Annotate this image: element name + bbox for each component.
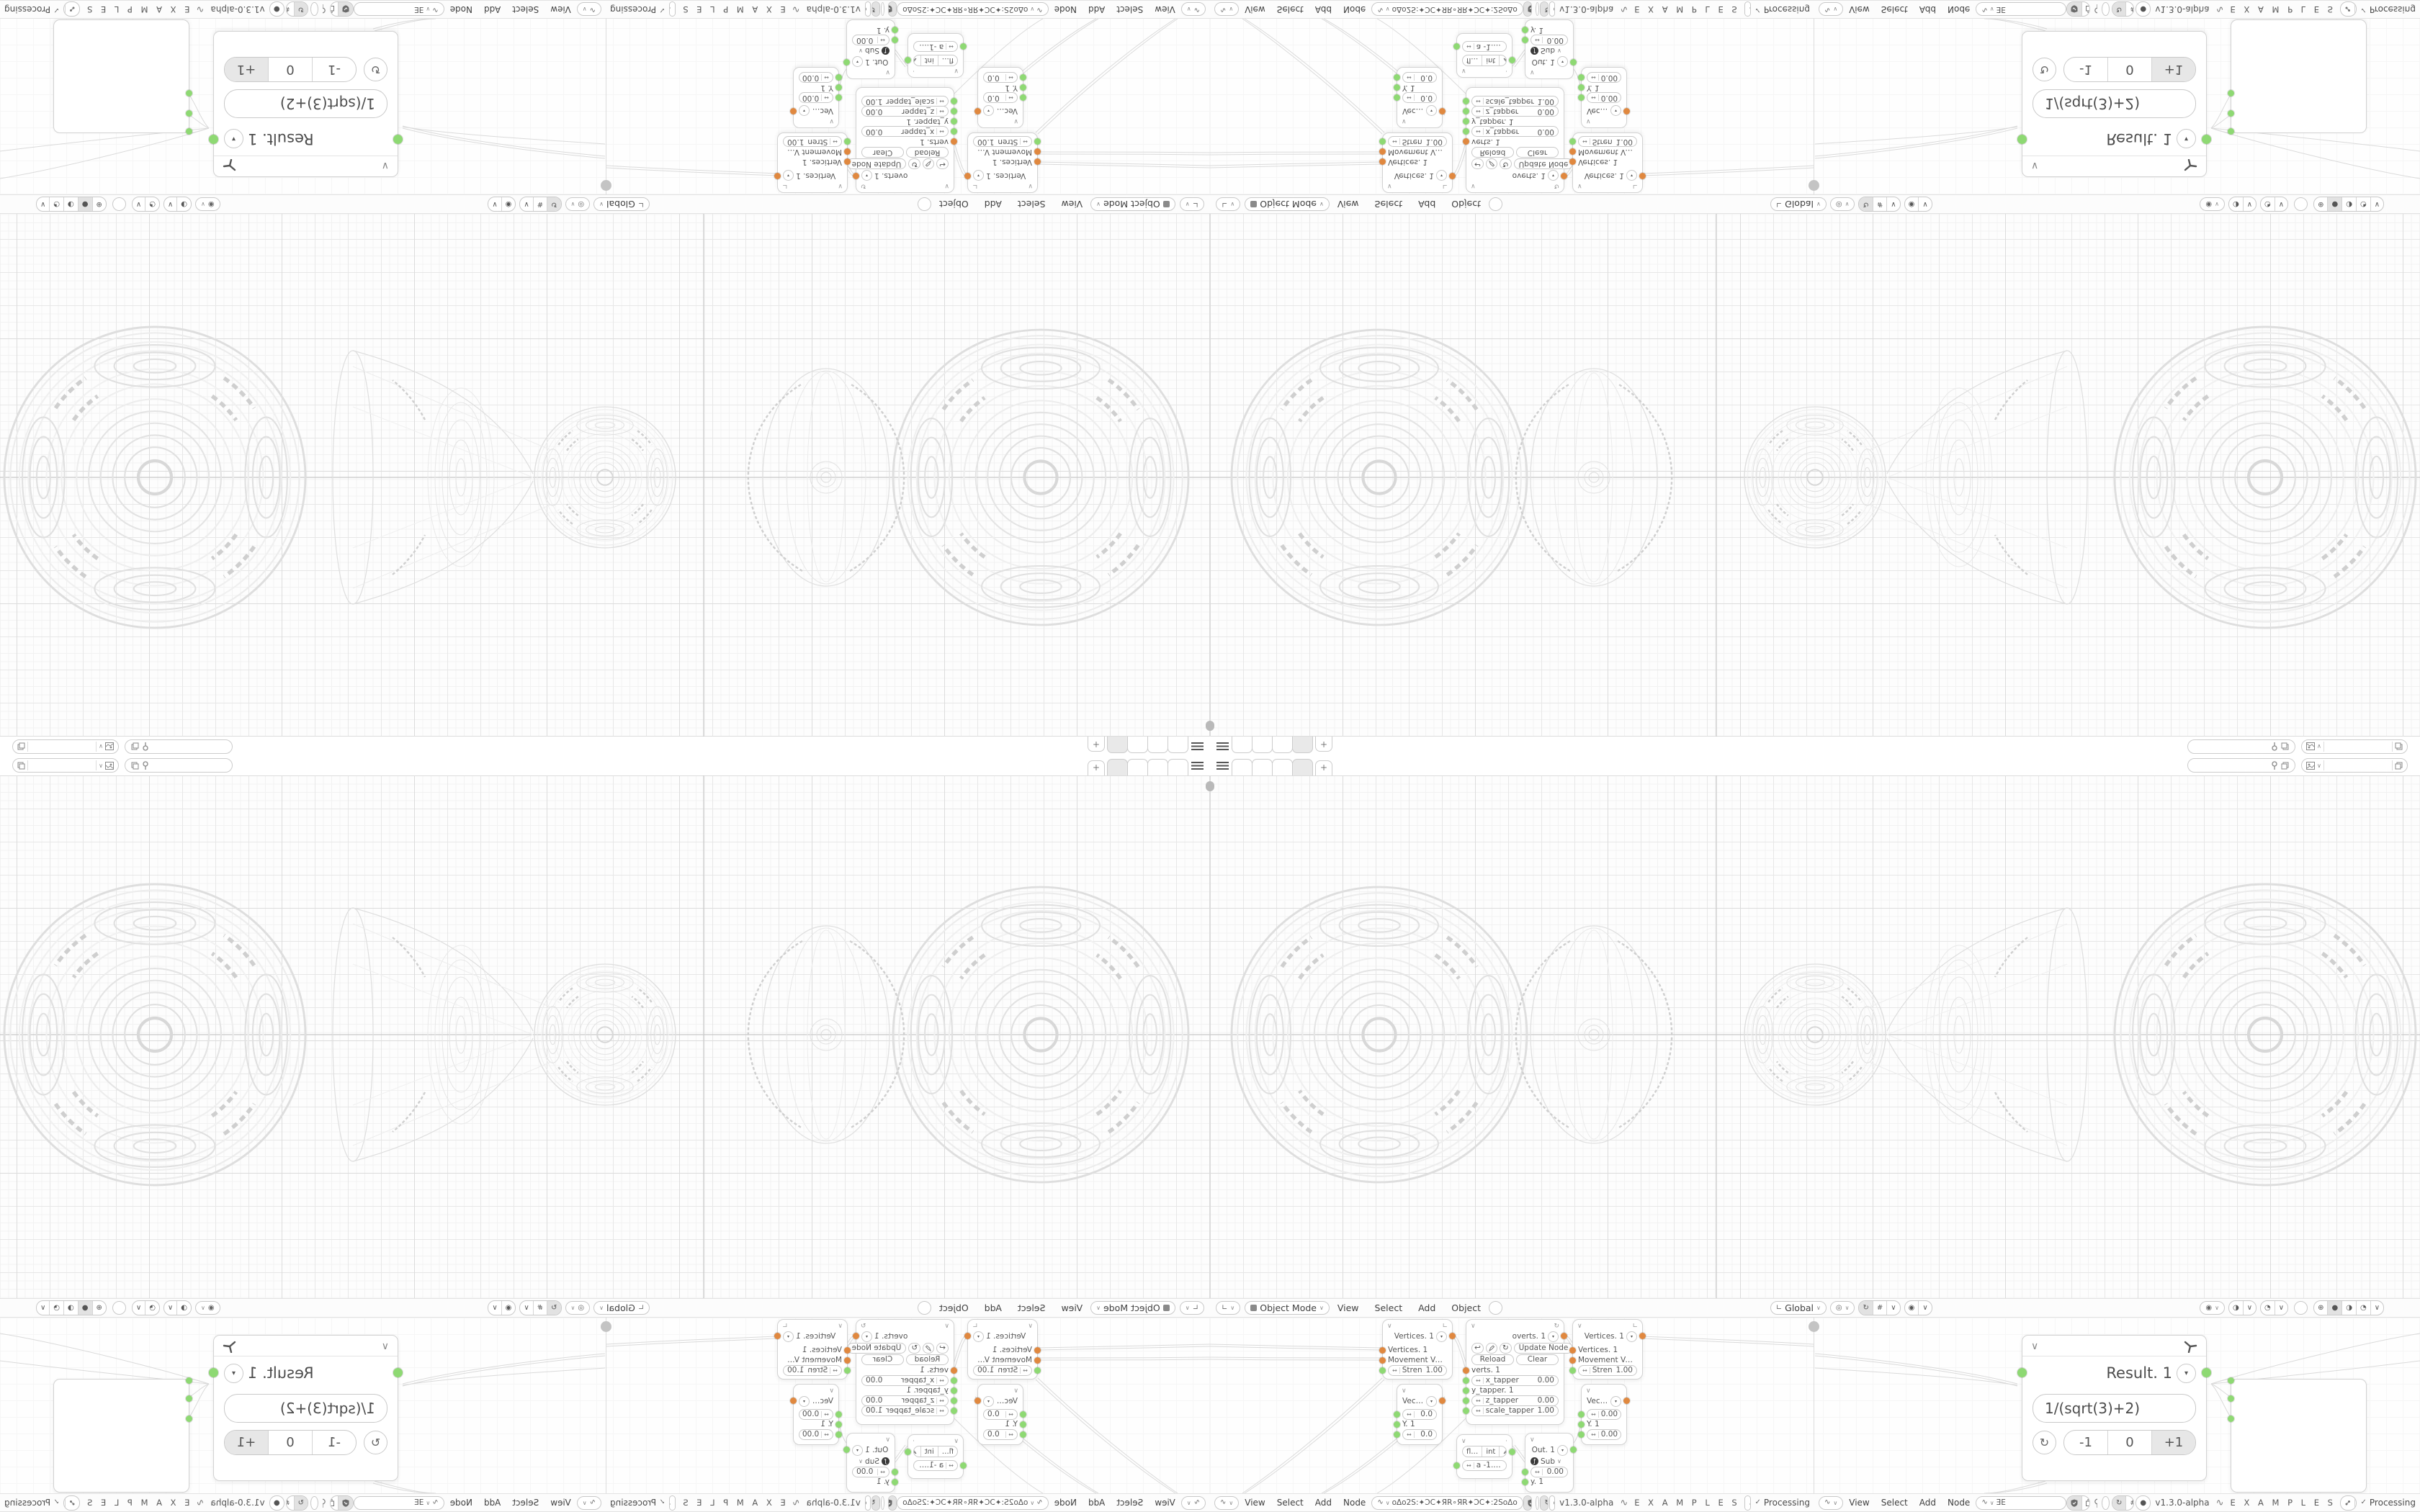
menu-node[interactable]: Node [1343,1498,1366,1508]
int-option[interactable]: int [920,1446,938,1457]
snlite-edit-button[interactable] [923,1343,934,1354]
pin-icon[interactable] [142,761,149,770]
draft-mode-icon[interactable]: ↻ [871,1496,879,1510]
node-blank[interactable] [53,19,189,133]
draft-mode-icon[interactable]: ↻ [2112,1496,2126,1510]
shading-wireframe-icon[interactable]: ⊕ [92,197,106,211]
shield-icon[interactable] [2067,1496,2082,1510]
node-result[interactable]: ∨ Result. 1 ▾ 1/(sqrt(3)+2) ↻ -1 0 +1 [213,31,398,177]
value-field[interactable]: ↔0.00 [799,1429,833,1440]
input-socket[interactable] [1463,109,1469,115]
shading-solid-icon[interactable]: ● [78,1301,92,1315]
menu-add[interactable]: Add [985,199,1002,210]
dropdown-button[interactable]: ▾ [852,1445,863,1456]
z-tapper-field[interactable]: ↔ z_tapper0.00 [861,107,949,117]
cycle-button[interactable]: ↻ [2033,1431,2056,1454]
input-socket[interactable] [951,1398,957,1404]
value-field[interactable]: ↔0.00 [1587,93,1621,104]
editor-type-button[interactable]: ∿∨ [1214,3,1239,17]
copy-icon[interactable] [2082,1496,2090,1510]
node-vector-2[interactable]: ∨ Vector… ▾ ↔0.00 Y. 1 ↔0.00 [1581,67,1627,128]
draft-snap-controls[interactable]: ↻ # ∨ [286,1495,308,1511]
increment-button[interactable]: +1 [2152,1431,2195,1454]
extra-tools[interactable] [2340,2,2357,17]
proportional-icon[interactable]: ◉ [501,1301,516,1315]
examples-label[interactable]: E X A M P L E S [84,1498,189,1508]
output-socket[interactable] [1639,1333,1646,1339]
type-switch[interactable]: fl… int ▾ [913,1446,958,1457]
input-socket[interactable] [1379,1357,1386,1364]
snap-controls[interactable]: ↻ # ∨ [519,1300,561,1315]
overlays-icon[interactable]: ◑ [176,197,191,211]
type-switch[interactable]: fl… int ▾ [913,55,958,66]
tree-ops[interactable]: × [330,2,354,17]
output-socket[interactable] [905,1449,911,1455]
x-tapper-field[interactable]: ↔ x_tapper0.00 [1471,1375,1559,1386]
value-field[interactable]: ↔0.0 [1402,73,1437,84]
overlays-controls[interactable]: ◑ ∨ [2228,197,2257,212]
node-editor-area[interactable]: ∨∟ Vertices. 1 ▾ Vertices. 1 Movement Ve… [1210,1318,2420,1493]
shading-wireframe-icon[interactable]: ⊕ [2314,1301,2328,1315]
menu-add[interactable]: Add [1919,1498,1936,1508]
output-socket[interactable] [1509,57,1515,63]
input-socket[interactable] [1394,95,1400,102]
area-divider[interactable] [606,19,606,194]
sphere-dropdown[interactable]: ● ∨ [1549,1495,1555,1511]
input-socket[interactable] [1463,1367,1469,1374]
menu-add[interactable]: Add [1418,1302,1435,1313]
menu-select[interactable]: Select [1116,1498,1143,1508]
tree-name[interactable]: oΔo2S:✦ƆC✦ЯR∘ЯR✦ƆC✦:2SoΔo [902,5,1028,14]
copy-icon[interactable] [2395,743,2403,751]
snlite-back-button[interactable]: ↩ [1471,1343,1484,1354]
shield-icon[interactable] [2067,3,2082,17]
input-socket[interactable] [1394,75,1400,81]
menu-select[interactable]: Select [1116,4,1143,14]
tree-selector[interactable]: ∿ ∨ ƎE [354,3,444,17]
output-socket[interactable] [774,1333,781,1339]
draft-snap-controls[interactable]: ↻ # ∨ [1540,1495,1549,1511]
tree-name[interactable]: ƎE [359,1498,424,1507]
formula-field[interactable]: 1/(sqrt(3)+2) [2033,89,2196,118]
sphere-dropdown[interactable]: ● ∨ [2136,2,2151,17]
shading-solid-icon[interactable]: ● [78,197,92,211]
proportional-edit-controls[interactable]: ◉ ∨ [1904,1300,1932,1315]
mode-dropdown[interactable]: Object Mode ∨ [1245,197,1330,211]
tree-ops[interactable]: × [1523,1495,1532,1511]
viewport-3d[interactable] [0,214,1210,737]
shading-mode-switch[interactable]: ⊕ ● ◑ ◔ ∨ [2313,1300,2384,1315]
sphere-icon[interactable]: ● [865,3,870,17]
material-preview[interactable] [881,3,884,17]
node-overts-snlite[interactable]: ∨↻ overts. 1 ▾ ↩ ↻ Update Node Reload Cl… [856,87,954,193]
input-socket[interactable] [844,1367,851,1374]
value-field[interactable]: ↔0.00 [799,73,833,84]
input-socket[interactable] [1522,37,1528,44]
collapse-chevron-icon[interactable]: ∨ [1402,1387,1407,1395]
add-workspace-button[interactable]: + [1088,737,1105,752]
snap-target-icon[interactable]: # [533,1301,547,1315]
copy-icon[interactable] [131,762,139,770]
toolbar-toggle-nub[interactable] [1206,781,1210,791]
tree-name[interactable]: oΔo2S:✦ƆC✦ЯR∘ЯR✦ƆC✦:2SoΔo [1392,5,1518,14]
x-tapper-field[interactable]: ↔ x_tapper0.00 [861,127,949,138]
output-socket[interactable] [1449,173,1456,179]
node-overts-snlite[interactable]: ∨↻ overts. 1 ▾ ↩ ↻ Update Node Reload Cl… [856,1319,954,1425]
input-socket[interactable] [1020,1431,1026,1438]
scale-tapper-field[interactable]: ↔ scale_tapper1.00 [861,1405,949,1416]
material-preview[interactable] [1536,1496,1539,1510]
mode-dropdown[interactable]: Object Mode ∨ [1090,197,1175,211]
type-switch[interactable]: fl… int ▾ [1462,55,1507,66]
workspace-tab-active[interactable] [1107,759,1128,776]
menu-view[interactable]: View [1337,199,1359,210]
reset-button[interactable]: 0 [268,58,312,81]
overlays-controls[interactable]: ◑ ∨ [163,197,192,212]
workspace-tab-active[interactable] [1292,736,1313,753]
copy-icon[interactable] [2281,743,2289,751]
input-socket[interactable] [1569,1347,1576,1354]
tree-ops[interactable]: × [2066,2,2090,17]
input-socket[interactable] [1569,159,1576,166]
node-vector-1[interactable]: ∨ Vector… ▾ ↔0.0 Y. 1 ↔0.0 [1397,67,1443,128]
workspace-tab[interactable] [1168,736,1188,753]
pin-icon[interactable] [323,5,326,14]
value-field[interactable]: ↔0.0 [1402,93,1437,104]
xform-indicator[interactable] [1489,197,1502,211]
output-socket[interactable] [1561,173,1567,179]
sphere-icon[interactable]: ● [269,1496,284,1510]
viewlayer-selector[interactable]: ∨ [2301,758,2408,773]
input-socket[interactable] [2228,1395,2234,1402]
dropdown-button[interactable]: ▾ [1436,171,1447,181]
shading-material-icon[interactable]: ◑ [63,1301,78,1315]
operation-label[interactable]: Sub [865,47,879,55]
output-socket[interactable] [1639,173,1646,179]
refresh-icon[interactable]: ↻ [1554,183,1559,190]
input-socket[interactable] [892,1469,898,1475]
input-socket[interactable] [951,1408,957,1414]
tree-ops[interactable]: × [2066,1495,2090,1511]
node-tool-icon[interactable] [2341,3,2355,17]
dropdown-button[interactable]: ▾ [799,1396,810,1407]
workspace-tab[interactable] [1147,759,1168,776]
proportional-icon[interactable]: ◉ [1905,1301,1919,1315]
xray-controls[interactable]: ◔ ∨ [132,197,160,212]
copy-icon[interactable] [330,3,338,17]
int-option[interactable]: int [920,55,938,66]
draft-snap-controls[interactable]: ↻ # ∨ [1540,2,1549,17]
output-socket[interactable] [964,1333,971,1339]
reset-button[interactable]: 0 [2108,58,2152,81]
sphere-dropdown[interactable]: ● ∨ [1549,2,1555,17]
value-field[interactable]: ↔0.0 [1402,1429,1437,1440]
snap-grid-icon[interactable]: # [286,1496,293,1510]
tree-ops[interactable]: × [888,1495,897,1511]
toolbar-toggle-nub[interactable] [1206,721,1210,731]
input-socket[interactable] [186,90,192,96]
proportional-edit-controls[interactable]: ◉ ∨ [488,1300,516,1315]
node-result[interactable]: ∨ Result. 1 ▾ 1/(sqrt(3)+2) ↻ -1 0 +1 [213,1335,398,1481]
show-gizmo-dropdown[interactable]: ◉ ∨ [195,1301,220,1315]
workspace-tab-active[interactable] [1292,759,1313,776]
eyedropper-icon[interactable] [1500,1446,1507,1457]
collapse-chevron-icon[interactable]: ∨ [382,160,389,171]
examples-label[interactable]: E X A M P L E S [1634,1498,1739,1508]
shading-wireframe-icon[interactable]: ⊕ [92,1301,106,1315]
update-node-button[interactable]: Update Node [1514,159,1574,170]
node-blank[interactable] [53,1379,189,1493]
output-socket[interactable] [790,1398,797,1404]
pin-icon[interactable] [323,1498,326,1508]
node-vertices-1[interactable]: ∨∟ Vertices. 1 ▾ Vertices. 1 Movement Ve… [967,1319,1038,1380]
mode-dropdown[interactable]: Object Mode ∨ [1090,1301,1175,1315]
console-icon[interactable] [2355,3,2357,17]
formula-field[interactable]: 1/(sqrt(3)+2) [224,1394,387,1423]
console-icon[interactable] [63,1496,65,1510]
input-socket[interactable] [2228,110,2234,117]
sphere-dropdown[interactable]: ● ∨ [269,2,284,17]
clear-button[interactable]: Clear [1516,148,1559,158]
node-vertices-2[interactable]: ∨∟ Vertices. 1 ▾ Vertices. 1 Movement Ve… [1572,1319,1643,1380]
a-value-field[interactable]: ↔a -1.00 [913,42,958,53]
int-option[interactable]: int [1482,55,1500,66]
viewlayer-selector[interactable]: ∨ [2301,739,2408,754]
sphere-icon[interactable]: ● [269,3,284,17]
editor-type-button[interactable]: ∟ ∨ [1216,1301,1240,1315]
tree-selector[interactable]: ∿ ∨ oΔo2S:✦ƆC✦ЯR∘ЯR✦ƆC✦:2SoΔo [1371,1496,1523,1510]
workspace-tab[interactable] [1252,736,1273,753]
draft-snap-controls[interactable]: ↻ # ∨ [871,1495,880,1511]
node-float-int[interactable]: ∨· fl… int ▾ ↔a -1.00 [1456,33,1512,78]
input-socket[interactable] [1522,1479,1528,1485]
output-socket[interactable] [209,1368,218,1377]
reload-button[interactable]: Reload [1471,148,1514,158]
collapse-chevron-icon[interactable]: ∨ [838,183,843,190]
copy-icon[interactable] [2395,762,2403,770]
cycle-button[interactable]: ↻ [364,58,387,81]
value-field[interactable]: ↔0.0 [983,73,1018,84]
draft-snap-controls[interactable]: ↻ # ∨ [286,2,308,17]
draft-snap-controls[interactable]: ↻ # ∨ [871,2,880,17]
material-preview[interactable] [310,3,318,17]
shading-extra[interactable] [2294,197,2308,211]
input-socket[interactable] [1379,139,1386,145]
node-tool-icon[interactable] [1745,3,1751,17]
area-join-handle[interactable] [1809,1321,1819,1332]
scale-tapper-field[interactable]: ↔ scale_tapper1.00 [1471,1405,1559,1416]
menu-select[interactable]: Select [1277,1498,1304,1508]
output-socket[interactable] [1623,1398,1630,1404]
overlays-controls[interactable]: ◑ ∨ [2228,1300,2257,1315]
menu-view[interactable]: View [1337,1302,1359,1313]
input-socket[interactable] [951,1377,957,1384]
input-socket[interactable] [1463,119,1469,125]
node-out[interactable]: ∨ Out. 1 ▾ ƒ Sub ∨ ↔0.00 y. 1 [846,1433,895,1493]
menu-add[interactable]: Add [1088,4,1105,14]
pin-icon[interactable] [2271,742,2278,751]
tree-name[interactable]: oΔo2S:✦ƆC✦ЯR∘ЯR✦ƆC✦:2SoΔo [902,1498,1028,1507]
menu-view[interactable]: View [550,1498,570,1508]
xray-controls[interactable]: ◔ ∨ [2260,197,2288,212]
xray-icon[interactable]: ◔ [145,1301,159,1315]
viewport-3d[interactable] [1210,214,2420,737]
sphere-icon[interactable]: ● [1550,3,1555,17]
sphere-icon[interactable]: ● [865,1496,870,1510]
collapse-chevron-icon[interactable]: ∨ [829,1387,834,1395]
input-socket[interactable] [1463,1408,1469,1414]
menu-select[interactable]: Select [1881,1498,1908,1508]
xray-controls[interactable]: ◔ ∨ [2260,1300,2288,1315]
input-socket[interactable] [1578,75,1585,81]
a-value-field[interactable]: ↔a -1.00 [1462,1460,1507,1471]
reset-button[interactable]: 0 [2108,1431,2152,1454]
input-socket[interactable] [844,1357,851,1364]
menu-add[interactable]: Add [985,1302,1002,1313]
scene-selector[interactable] [125,758,233,773]
menu-object[interactable]: Object [1451,199,1481,210]
examples-label[interactable]: E X A M P L E S [2231,4,2336,14]
stepper-buttons[interactable]: -1 0 +1 [2063,57,2196,82]
node-editor-area[interactable]: ∨∟ Vertices. 1 ▾ Vertices. 1 Movement Ve… [0,19,1210,194]
sphere-icon[interactable]: ● [2136,3,2151,17]
refresh-icon[interactable]: ↻ [1554,1323,1559,1330]
workspace-tab[interactable] [1232,736,1252,753]
orientation-dropdown[interactable]: ∟ Global ∨ [593,197,650,211]
hamburger-menu-icon[interactable] [1191,762,1204,770]
tree-selector[interactable]: ∿ ∨ oΔo2S:✦ƆC✦ЯR∘ЯR✦ƆC✦:2SoΔo [1371,3,1523,17]
show-gizmo-dropdown[interactable]: ◉ ∨ [2200,1301,2225,1315]
node-vertices-1[interactable]: ∨∟ Vertices. 1 ▾ Vertices. 1 Movement Ve… [1382,1319,1453,1380]
output-socket[interactable] [1449,1333,1456,1339]
input-socket[interactable] [951,1387,957,1394]
snap-target-icon[interactable]: # [533,197,547,211]
input-socket[interactable] [1379,1347,1386,1354]
clear-button[interactable]: Clear [861,148,904,158]
input-socket[interactable] [1034,1357,1041,1364]
shading-extra[interactable] [2294,1301,2308,1315]
menu-object[interactable]: Object [1451,1302,1481,1313]
editor-type-button[interactable]: ∟ ∨ [1216,197,1240,211]
snap-target-icon[interactable]: # [1873,1301,1887,1315]
scale-tapper-field[interactable]: ↔ scale_tapper1.00 [861,96,949,107]
workspace-tab[interactable] [1168,759,1188,776]
collapse-chevron-icon[interactable]: ∨ [885,1436,890,1444]
clear-button[interactable]: Clear [861,1354,904,1365]
area-divider[interactable] [606,1318,606,1493]
menu-view[interactable]: View [1061,199,1083,210]
collapse-chevron-icon[interactable]: ∨ [1013,118,1018,125]
snap-toggle-icon[interactable]: ↻ [547,1301,560,1315]
input-socket[interactable] [1034,1347,1041,1354]
output-socket[interactable] [843,59,850,66]
collapse-chevron-icon[interactable]: ∨ [1387,183,1392,190]
input-socket[interactable] [1463,139,1469,145]
draft-snap-controls[interactable]: ↻ # ∨ [2112,1495,2134,1511]
menu-node[interactable]: Node [1343,4,1366,14]
dropdown-button[interactable]: ▾ [1557,1445,1568,1456]
material-preview[interactable] [1536,3,1539,17]
input-socket[interactable] [1394,1411,1400,1418]
snlite-reload-icon-button[interactable]: ↻ [908,1343,920,1354]
value-field[interactable]: ↔0.0 [983,1409,1018,1420]
snlite-reload-icon-button[interactable]: ↻ [1500,159,1512,170]
shield-icon[interactable] [888,3,896,17]
dropdown-button[interactable]: ▾ [983,1396,994,1407]
collapse-chevron-icon[interactable]: ∨ [885,69,890,76]
input-socket[interactable] [1394,85,1400,91]
shading-wireframe-icon[interactable]: ⊕ [2314,197,2328,211]
extra-tools[interactable] [63,2,80,17]
input-socket[interactable] [1578,1411,1585,1418]
add-workspace-button[interactable]: + [1315,737,1332,752]
sphere-icon[interactable]: ● [2136,1496,2151,1510]
console-icon[interactable] [2355,1496,2357,1510]
shading-rendered-icon[interactable]: ◔ [49,1301,63,1315]
node-out[interactable]: ∨ Out. 1 ▾ ƒ Sub ∨ ↔0.00 y. 1 [1525,19,1574,79]
overlays-icon[interactable]: ◑ [2229,1301,2244,1315]
node-tool-icon[interactable] [669,3,675,17]
extra-tools[interactable] [669,2,676,17]
node-vector-1[interactable]: ∨ Vector… ▾ ↔0.0 Y. 1 ↔0.0 [977,67,1023,128]
menu-object[interactable]: Object [939,1302,969,1313]
viewlayer-selector[interactable]: ∨ [12,758,119,773]
examples-label[interactable]: E X A M P L E S [2231,1498,2336,1508]
input-socket[interactable] [1569,1367,1576,1374]
dropdown-button[interactable]: ▾ [973,171,984,181]
copy-icon[interactable] [17,762,25,770]
input-socket[interactable] [2228,90,2234,96]
stren-field[interactable]: ↔ Stren 1.00 [973,137,1032,148]
x-tapper-field[interactable]: ↔ x_tapper0.00 [861,1375,949,1386]
value-field[interactable]: ↔0.00 [1587,1409,1621,1420]
output-socket[interactable] [853,173,859,179]
dropdown-button[interactable]: ▾ [1626,1331,1637,1342]
value-field[interactable]: ↔0.00 [1531,35,1568,46]
draft-mode-icon[interactable]: ↻ [294,1496,308,1510]
hamburger-menu-icon[interactable] [1216,762,1229,770]
collapse-chevron-icon[interactable]: ∨ [829,118,834,125]
decrement-button[interactable]: -1 [312,1431,356,1454]
area-join-handle[interactable] [601,1321,611,1332]
material-preview[interactable] [310,1496,318,1510]
input-socket[interactable] [835,1411,842,1418]
node-float-int[interactable]: ∨· fl… int ▾ ↔a -1.00 [907,33,964,78]
editor-type-button[interactable]: ∿∨ [1214,1496,1239,1510]
output-socket[interactable] [905,57,911,63]
input-socket[interactable] [1034,1367,1041,1374]
node-vector-2[interactable]: ∨ Vector… ▾ ↔0.00 Y. 1 ↔0.00 [793,67,839,128]
collapse-chevron-icon[interactable]: ∨ [1028,1323,1033,1330]
pin-icon[interactable] [142,742,149,751]
collapse-chevron-icon[interactable]: ∨ [1013,1387,1018,1395]
pin-icon[interactable] [886,5,887,14]
node-out[interactable]: ∨ Out. 1 ▾ ƒ Sub ∨ ↔0.00 y. 1 [1525,1433,1574,1493]
collapse-chevron-icon[interactable]: ∨ [1387,1323,1392,1330]
editor-type-button[interactable]: ∿∨ [1181,3,1206,17]
formula-field[interactable]: 1/(sqrt(3)+2) [224,89,387,118]
pivot-dropdown[interactable]: ◎ ∨ [565,197,591,211]
copy-icon[interactable] [330,1496,338,1510]
eyedropper-icon[interactable] [913,55,920,66]
snap-toggle-icon[interactable]: ↻ [1859,1301,1873,1315]
dropdown-button[interactable]: ▾ [783,171,794,181]
input-socket[interactable] [1569,139,1576,145]
stren-field[interactable]: ↔ Stren 1.00 [973,1365,1032,1376]
dropdown-button[interactable]: ▾ [783,1331,794,1342]
dropdown-button[interactable]: ▾ [1548,1331,1559,1342]
stren-field[interactable]: ↔ Stren 1.00 [1578,137,1637,148]
